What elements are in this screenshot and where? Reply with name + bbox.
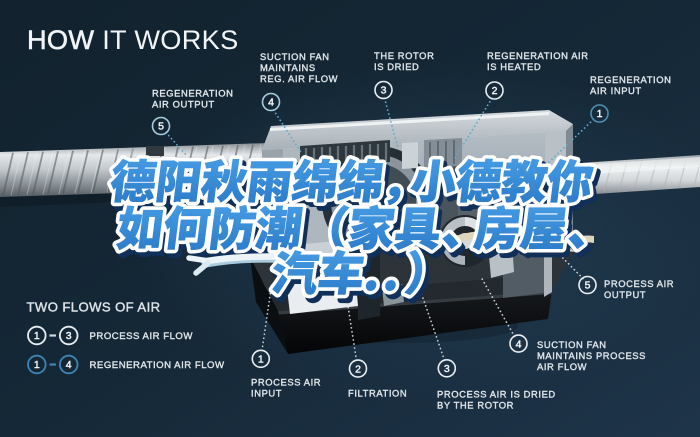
- svg-text:3: 3: [381, 85, 387, 97]
- svg-text:REGENERATION: REGENERATION: [590, 74, 672, 85]
- svg-text:1: 1: [34, 359, 40, 371]
- svg-text:IS DRIED: IS DRIED: [374, 61, 419, 72]
- svg-text:AIR INPUT: AIR INPUT: [590, 85, 642, 96]
- svg-text:MAINTAINS PROCESS: MAINTAINS PROCESS: [537, 350, 646, 361]
- svg-text:3: 3: [444, 363, 450, 375]
- svg-text:REG. AIR FLOW: REG. AIR FLOW: [260, 73, 338, 84]
- svg-text:PROCESS AIR IS DRIED: PROCESS AIR IS DRIED: [437, 389, 556, 400]
- svg-text:PROCESS AIR: PROCESS AIR: [604, 278, 674, 289]
- svg-text:REGENERATION AIR: REGENERATION AIR: [487, 50, 589, 61]
- svg-text:MAINTAINS: MAINTAINS: [260, 62, 316, 73]
- svg-text:5: 5: [585, 280, 591, 292]
- svg-text:SUCTION FAN: SUCTION FAN: [260, 51, 330, 62]
- svg-text:2: 2: [355, 363, 361, 375]
- svg-text:1: 1: [597, 108, 603, 120]
- svg-text:1: 1: [258, 354, 264, 366]
- svg-text:3: 3: [66, 330, 72, 342]
- svg-text:5: 5: [158, 121, 164, 133]
- svg-text:REGENERATION AIR FLOW: REGENERATION AIR FLOW: [90, 360, 225, 371]
- svg-text:4: 4: [516, 338, 522, 350]
- svg-text:4: 4: [268, 97, 274, 109]
- svg-text:FILTRATION: FILTRATION: [348, 388, 407, 399]
- svg-text:AIR OUTPUT: AIR OUTPUT: [152, 99, 215, 110]
- svg-text:PROCESS AIR: PROCESS AIR: [251, 377, 321, 388]
- svg-text:OUTPUT: OUTPUT: [604, 289, 646, 300]
- svg-text:4: 4: [66, 359, 72, 371]
- svg-text:AIR FLOW: AIR FLOW: [537, 361, 587, 372]
- svg-text:SUCTION FAN: SUCTION FAN: [537, 339, 607, 350]
- svg-text:REGENERATION: REGENERATION: [152, 88, 234, 99]
- svg-text:PROCESS AIR FLOW: PROCESS AIR FLOW: [90, 331, 194, 342]
- svg-text:2: 2: [492, 85, 498, 97]
- svg-text:THE ROTOR: THE ROTOR: [374, 50, 434, 61]
- svg-text:IS HEATED: IS HEATED: [487, 61, 541, 72]
- svg-text:HOW IT WORKS: HOW IT WORKS: [27, 24, 239, 55]
- svg-text:TWO FLOWS OF AIR: TWO FLOWS OF AIR: [27, 299, 161, 314]
- svg-text:INPUT: INPUT: [251, 388, 282, 399]
- svg-text:1: 1: [34, 330, 40, 342]
- svg-text:BY THE ROTOR: BY THE ROTOR: [437, 400, 514, 411]
